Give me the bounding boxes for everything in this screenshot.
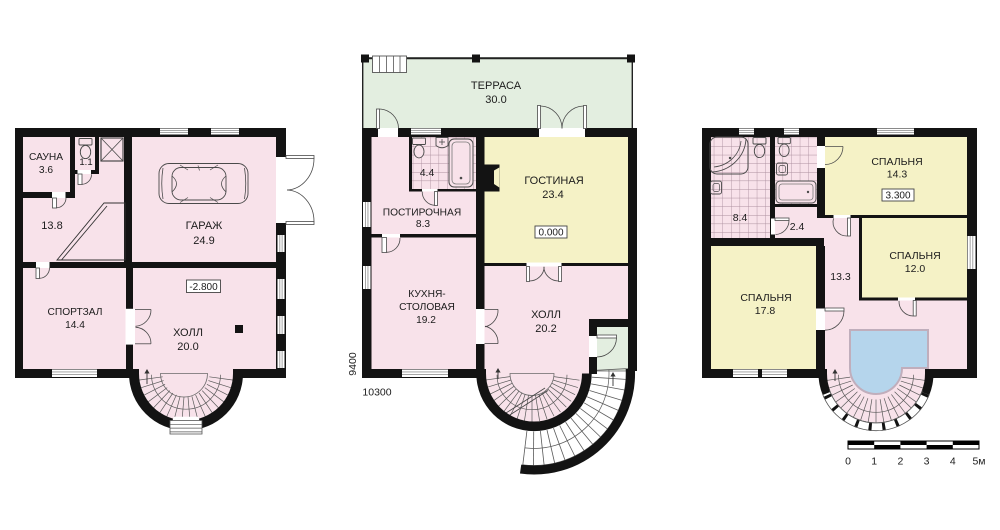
svg-text:10300: 10300 xyxy=(362,387,391,399)
svg-text:3: 3 xyxy=(924,456,930,468)
svg-text:23.4: 23.4 xyxy=(542,189,563,201)
svg-text:14.3: 14.3 xyxy=(887,169,908,181)
svg-text:0: 0 xyxy=(845,456,851,468)
svg-text:4: 4 xyxy=(950,456,956,468)
svg-text:17.8: 17.8 xyxy=(755,305,776,317)
svg-text:3.300: 3.300 xyxy=(885,191,910,202)
svg-text:8.4: 8.4 xyxy=(733,212,748,224)
svg-text:0.000: 0.000 xyxy=(538,228,563,239)
svg-text:4.4: 4.4 xyxy=(420,167,435,179)
svg-text:1: 1 xyxy=(871,456,877,468)
svg-text:8.3: 8.3 xyxy=(416,219,430,230)
svg-text:САУНА: САУНА xyxy=(29,152,63,163)
svg-text:14.4: 14.4 xyxy=(65,320,85,331)
svg-text:ГОСТИНАЯ: ГОСТИНАЯ xyxy=(524,175,583,187)
svg-text:ХОЛЛ: ХОЛЛ xyxy=(173,327,203,339)
svg-text:12.0: 12.0 xyxy=(905,263,926,275)
svg-text:СПАЛЬНЯ: СПАЛЬНЯ xyxy=(740,292,791,304)
svg-text:КУХНЯ-: КУХНЯ- xyxy=(408,289,445,300)
svg-text:СПАЛЬНЯ: СПАЛЬНЯ xyxy=(889,250,940,262)
svg-text:3.6: 3.6 xyxy=(39,165,53,176)
svg-text:5м: 5м xyxy=(972,456,985,468)
svg-text:20.0: 20.0 xyxy=(177,341,198,353)
svg-text:СПОРТЗАЛ: СПОРТЗАЛ xyxy=(48,307,103,318)
svg-text:2: 2 xyxy=(897,456,903,468)
svg-text:ПОСТИРОЧНАЯ: ПОСТИРОЧНАЯ xyxy=(383,208,461,219)
svg-text:СПАЛЬНЯ: СПАЛЬНЯ xyxy=(871,156,922,168)
svg-text:ТЕРРАСА: ТЕРРАСА xyxy=(471,80,522,92)
svg-text:13.3: 13.3 xyxy=(830,271,851,283)
svg-text:24.9: 24.9 xyxy=(193,235,214,247)
svg-text:ХОЛЛ: ХОЛЛ xyxy=(531,309,561,321)
svg-text:20.2: 20.2 xyxy=(535,323,556,335)
svg-text:СТОЛОВАЯ: СТОЛОВАЯ xyxy=(399,302,455,313)
svg-text:30.0: 30.0 xyxy=(485,94,506,106)
svg-text:2.4: 2.4 xyxy=(790,221,805,233)
svg-text:19.2: 19.2 xyxy=(416,315,436,326)
svg-text:-2.800: -2.800 xyxy=(189,282,218,293)
svg-text:1.1: 1.1 xyxy=(79,157,92,168)
svg-text:9400: 9400 xyxy=(347,352,359,376)
svg-text:ГАРАЖ: ГАРАЖ xyxy=(186,220,223,232)
svg-text:13.8: 13.8 xyxy=(41,220,62,232)
